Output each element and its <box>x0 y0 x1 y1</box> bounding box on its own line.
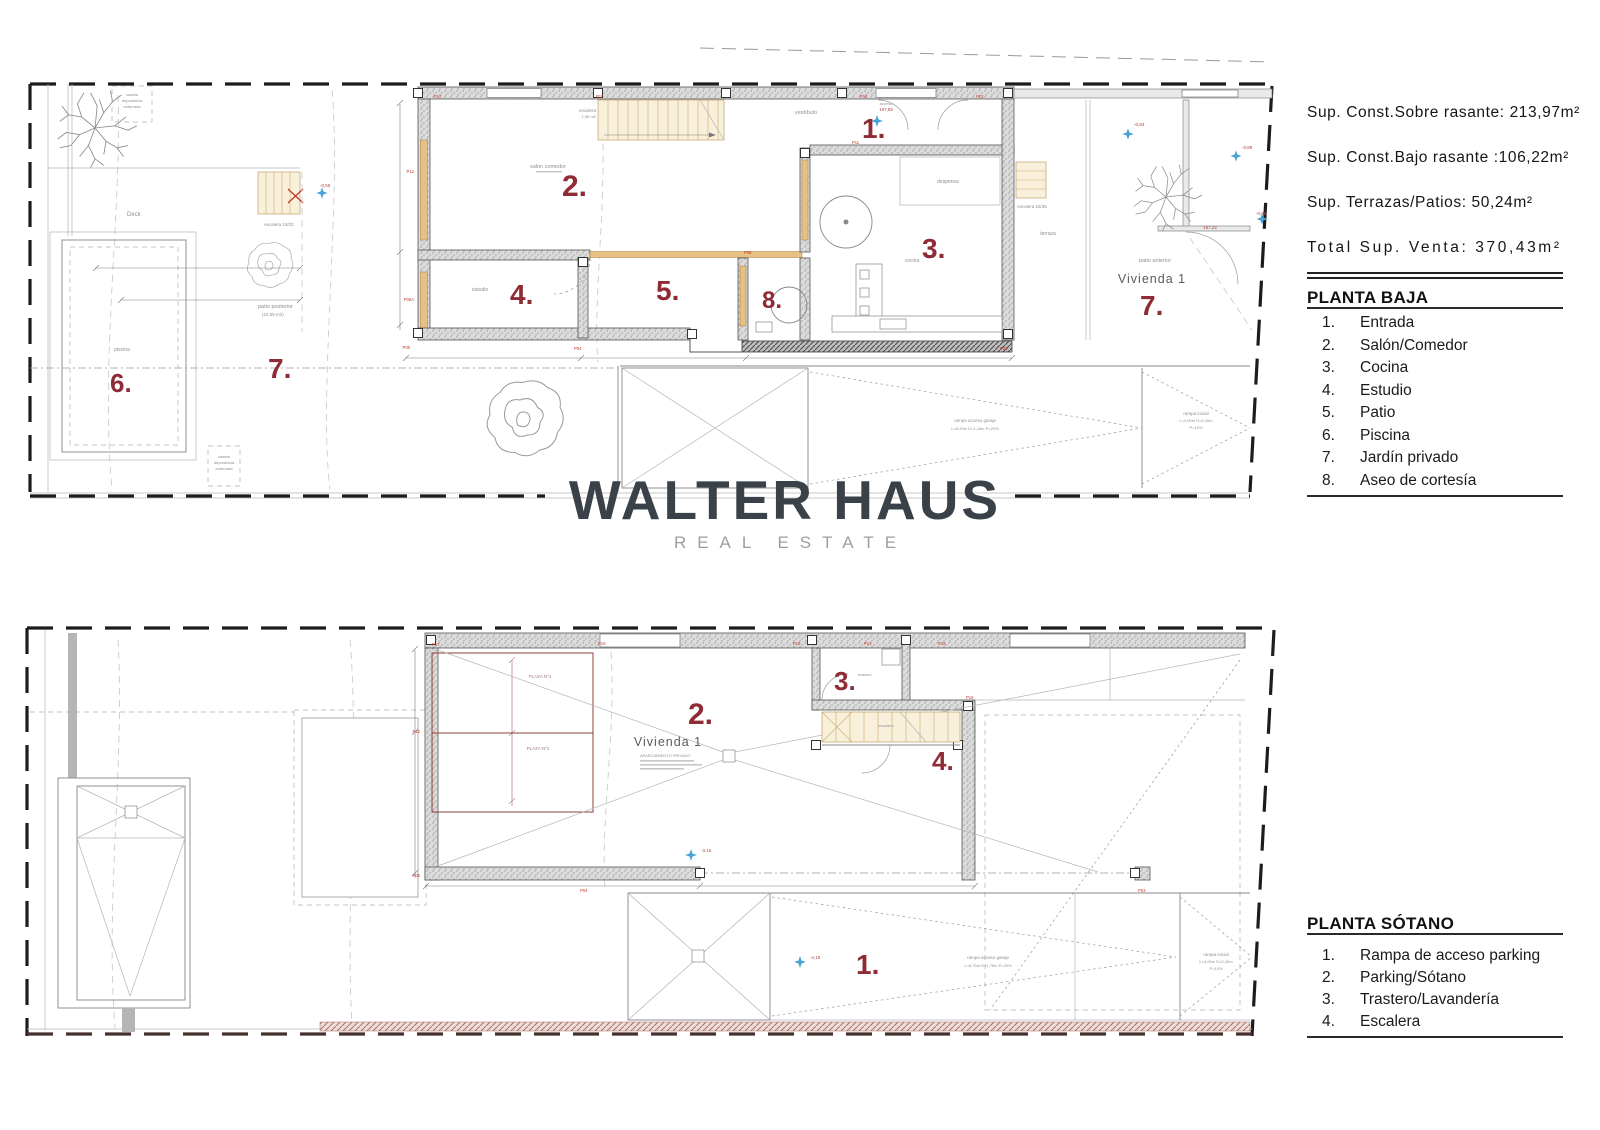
legend-title-sotano: PLANTA SÓTANO <box>1307 914 1454 934</box>
divider <box>1307 495 1563 497</box>
info-panel: Sup. Const.Sobre rasante: 213,97m² Sup. … <box>1307 0 1565 1130</box>
logo-title: WALTER HAUS <box>540 472 1030 530</box>
svg-text:P12: P12 <box>407 169 415 174</box>
svg-text:escalera: escalera <box>579 108 597 113</box>
svg-text:-0,83: -0,83 <box>1134 122 1145 127</box>
pool: piscina 6. <box>50 232 196 460</box>
deck-label: Deck <box>127 212 142 218</box>
svg-text:-0,55: -0,55 <box>320 183 331 188</box>
svg-text:APARCAMIENTO PRIVADO: APARCAMIENTO PRIVADO <box>640 753 690 758</box>
window <box>487 89 541 98</box>
svg-text:depuradora: depuradora <box>122 98 143 103</box>
tree-icon <box>487 381 563 456</box>
svg-text:P04: P04 <box>574 346 582 351</box>
svg-text:acceso: acceso <box>880 101 893 106</box>
svg-text:-3,15: -3,15 <box>701 848 712 853</box>
bush-icon <box>247 243 293 288</box>
room-number-1: 1. <box>856 949 879 980</box>
svg-text:P=10%: P=10% <box>1209 966 1222 971</box>
legend-item-label: Entrada <box>1360 314 1414 332</box>
planta-baja-plan: caseta depuradora enterrada Deck piscina… <box>30 48 1272 498</box>
ramp-label: rampa acceso garaje <box>967 955 1010 960</box>
svg-text:P14: P14 <box>864 641 872 646</box>
pool-label: piscina <box>114 347 130 353</box>
svg-text:P17: P17 <box>432 642 440 647</box>
ramp-label: rampa inicial <box>1203 952 1228 957</box>
svg-text:P06A: P06A <box>404 297 414 302</box>
room-number-3: 3. <box>922 233 945 264</box>
svg-text:P08: P08 <box>744 250 752 255</box>
summary-line-total: Total Sup. Venta: 370,43m² <box>1307 239 1562 257</box>
plaza2-label: PLAZA Nº2 <box>527 746 550 751</box>
svg-text:L=8,75m D=1,75m P=20%: L=8,75m D=1,75m P=20% <box>964 963 1012 968</box>
room-number-5: 5. <box>656 275 679 306</box>
room-number-2: 2. <box>562 170 587 203</box>
svg-text:P12: P12 <box>413 729 421 734</box>
divider <box>1307 307 1563 309</box>
svg-text:P19: P19 <box>598 641 606 646</box>
patio-anterior-label: patio anterior <box>1139 258 1171 264</box>
svg-text:1,58 m2: 1,58 m2 <box>582 114 597 119</box>
level-star-icon <box>316 187 327 198</box>
svg-text:P16: P16 <box>966 695 974 700</box>
basement-building: PLAZA Nº1 PLAZA Nº2 Vivienda 1 APARCAMIE… <box>412 633 1245 1010</box>
window <box>876 89 936 98</box>
legend-title-baja: PLANTA BAJA <box>1307 288 1428 308</box>
house-baja: escalera 1,58 m2 salon comedor 2. vestíb… <box>320 87 1272 361</box>
svg-text:L=4,00m D=0,40m: L=4,00m D=0,40m <box>1199 959 1233 964</box>
svg-text:P14: P14 <box>860 94 868 99</box>
stair-label: escalera 18/32 <box>264 222 294 227</box>
svg-text:P05: P05 <box>403 345 411 350</box>
ramp-label: rampa inicial <box>1183 411 1208 416</box>
plaza1-label: PLAZA Nº1 <box>529 674 552 679</box>
svg-text:P01: P01 <box>1000 346 1008 351</box>
svg-text:-4,15: -4,15 <box>810 955 821 960</box>
interior-stair: escalera 1,58 m2 <box>579 100 724 140</box>
svg-text:caseta: caseta <box>126 92 139 97</box>
svg-text:P15: P15 <box>793 641 801 646</box>
patio-posterior-label: patio posterior <box>258 304 293 310</box>
svg-text:escalera: escalera <box>878 723 894 728</box>
svg-text:P11: P11 <box>852 140 860 145</box>
tree-icon <box>1134 165 1202 232</box>
vivienda-label: Vivienda 1 <box>634 735 702 749</box>
svg-text:197,88: 197,88 <box>879 107 893 112</box>
pool-basement <box>58 633 190 1032</box>
svg-text:P10: P10 <box>596 94 604 99</box>
summary-line: Sup. Const.Bajo rasante :106,22m² <box>1307 149 1569 167</box>
window <box>600 634 680 647</box>
room-number-2: 2. <box>688 698 713 731</box>
level-star-icon <box>685 849 697 861</box>
svg-text:P04: P04 <box>580 888 588 893</box>
svg-text:depuradora: depuradora <box>214 460 235 465</box>
vestibulo-label: vestíbulo <box>795 110 817 116</box>
level-star-icon <box>1122 128 1133 139</box>
summary-line: Sup. Const.Sobre rasante: 213,97m² <box>1307 104 1580 122</box>
room-number-4: 4. <box>510 279 533 310</box>
ramp-zone-sotano: -4,15 1. rampa acceso garaje L=8,75m D=1… <box>628 893 1252 1020</box>
svg-text:escalera 15/35: escalera 15/35 <box>1017 204 1047 209</box>
room-number-6: 6. <box>110 368 132 398</box>
svg-text:caseta: caseta <box>218 454 231 459</box>
trastero-label: trastero <box>858 672 872 677</box>
despensa-label: despensa <box>937 179 959 185</box>
svg-text:P17: P17 <box>434 94 442 99</box>
summary-line: Sup. Terrazas/Patios: 50,24m² <box>1307 194 1533 212</box>
planta-sotano-plan: PLAZA Nº1 PLAZA Nº2 Vivienda 1 APARCAMIE… <box>27 628 1274 1036</box>
room-number-7-left: 7. <box>268 353 291 384</box>
svg-text:P=10%: P=10% <box>1189 425 1202 430</box>
room-number-7: 7. <box>1140 290 1163 321</box>
divider <box>1307 933 1563 935</box>
room-number-8: 8. <box>762 287 782 314</box>
terraza-label: terraza <box>1040 231 1056 237</box>
divider-double-rule <box>1307 272 1563 279</box>
svg-text:(24,59 m2): (24,59 m2) <box>262 312 284 317</box>
level-star-icon <box>794 956 806 968</box>
svg-text:L=4,00m D=0,40m: L=4,00m D=0,40m <box>1179 418 1213 423</box>
svg-text:-0,89: -0,89 <box>1242 145 1253 150</box>
svg-text:enterrada: enterrada <box>215 466 233 471</box>
vivienda-label: Vivienda 1 <box>1118 272 1186 286</box>
window <box>1010 634 1090 647</box>
room-number-1: 1. <box>862 113 885 144</box>
estudio-label: estudio <box>472 287 488 293</box>
ramp-label: rampa acceso garaje <box>954 418 997 423</box>
window <box>1182 90 1238 97</box>
salon-label: salon comedor <box>530 164 566 170</box>
svg-text:P13: P13 <box>976 94 984 99</box>
svg-text:197,22: 197,22 <box>1203 225 1217 230</box>
site-boundary-sotano <box>27 628 1274 1036</box>
legend-item-number: 1. <box>1322 314 1335 332</box>
floorplan-sheet: caseta depuradora enterrada Deck piscina… <box>0 0 1600 1130</box>
svg-text:P03: P03 <box>1138 888 1146 893</box>
svg-text:P13: P13 <box>938 641 946 646</box>
cocina-label: cocina <box>905 258 920 264</box>
svg-text:L=8,20m D=1,44m P=20%: L=8,20m D=1,44m P=20% <box>951 426 999 431</box>
room-number-4: 4. <box>932 746 954 776</box>
walter-haus-logo: WALTER HAUS REAL ESTATE <box>540 472 1030 553</box>
exterior-stair: escalera 18/32 <box>258 172 328 227</box>
logo-subtitle: REAL ESTATE <box>540 533 1030 553</box>
garden-baja: caseta depuradora enterrada Deck piscina… <box>50 86 563 486</box>
room-number-3: 3. <box>834 666 856 696</box>
svg-text:P05: P05 <box>413 873 421 878</box>
level-star-icon <box>1230 150 1241 161</box>
svg-text:enterrada: enterrada <box>123 104 141 109</box>
divider <box>1307 1036 1563 1038</box>
